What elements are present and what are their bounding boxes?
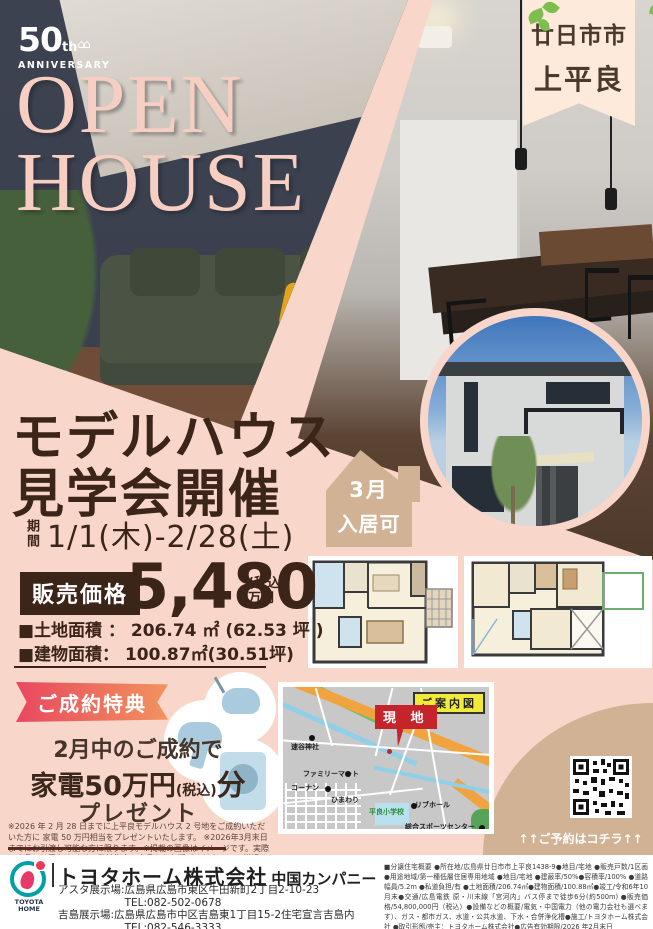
anniversary-suffix: th <box>62 40 77 55</box>
price-tax-note: (税込) <box>248 576 286 591</box>
logo-word-home: HOME <box>6 906 52 913</box>
showroom-tel-1: TEL:082-502-0678 <box>58 898 288 910</box>
floor-plan-2f <box>464 556 652 668</box>
logo-wordmark: TOYOTA HOME <box>6 899 52 914</box>
promo-line1: 2月中のご成約で <box>18 732 258 764</box>
price-amount: 5,480 <box>126 550 317 623</box>
badge-note: 入居可 <box>318 508 420 537</box>
access-map: ご案内図 現 地 速谷神社 ファミリーマート コーナン ひまわり 平良小学校 リ… <box>278 682 494 834</box>
period-label: 期間 <box>22 519 41 549</box>
landmark-dot <box>325 786 331 792</box>
open-house-title: OPEN HOUSE <box>16 66 306 222</box>
showroom-address-1: アスタ展示場:広島県広島市東区牛田新町2丁目2-10-23 <box>58 885 358 897</box>
open-house-line1: OPEN <box>16 66 306 144</box>
balcony-rail-shape <box>524 408 624 434</box>
toyota-home-logo-icon <box>10 861 46 897</box>
flyer-page: 50th⌂⌂ ANNIVERSARY OPEN HOUSE 廿日市市 上平良 <box>0 0 653 929</box>
vacuum-cleaner-icon <box>222 688 260 714</box>
reservation-qr-code <box>570 756 632 818</box>
stool-shape <box>628 275 653 339</box>
expressway-road-shape <box>278 682 385 726</box>
showroom-tel-2: TEL:082-546-3333 <box>58 923 288 929</box>
promo-underline <box>8 847 226 850</box>
showroom-addresses: アスタ展示場:広島県広島市東区牛田新町2丁目2-10-23 TEL:082-50… <box>58 885 358 929</box>
qr-caption: ↑↑ご予約はコチラ↑↑ <box>508 830 653 847</box>
cushion-shape <box>215 248 285 296</box>
landmark-label: 総合スポーツセンター <box>405 822 475 832</box>
showroom-address-2: 吉島展示場:広島県広島市中区吉島東1丁目15-2住宅宣言吉島内 <box>58 910 358 922</box>
landmark-label: リブホール <box>415 800 450 810</box>
footer: TOYOTA HOME トヨタホーム株式会社中国カンパニー アスタ展示場:広島県… <box>0 855 653 929</box>
window-shape <box>546 382 610 404</box>
land-area: ■土地面積 ： 206.74 ㎡ (62.53 坪 ) <box>18 616 324 641</box>
anniversary-logo: 50th⌂⌂ ANNIVERSARY <box>18 20 110 71</box>
exterior-house-photo <box>420 308 650 534</box>
house-skyline-icon: ⌂⌂ <box>77 37 88 51</box>
bonus-ribbon: ご成約特典 <box>16 682 168 722</box>
price-unit: (税込) 万円 <box>248 576 286 606</box>
landmark-label: 速谷神社 <box>291 742 319 752</box>
price-label: 販売価格 <box>20 572 140 615</box>
landmark-label: ひまわり <box>331 795 359 805</box>
landmark-label: コーナン <box>291 783 319 793</box>
building-area: ■建物面積： 100.87㎡(30.51坪) <box>18 640 294 665</box>
anniversary-number: 50 <box>18 20 62 59</box>
logo-dot-shape <box>36 861 45 870</box>
site-dot <box>387 749 392 754</box>
price-unit-label: 万円 <box>248 591 286 606</box>
bonus-ribbon-label: ご成約特典 <box>37 688 147 717</box>
floor-plan-2f-drawing <box>467 559 649 665</box>
landmark-dot <box>479 825 485 831</box>
section-divider <box>14 666 266 668</box>
open-house-line2: HOUSE <box>16 144 306 222</box>
footer-separator <box>52 863 54 887</box>
location-district: 上平良 <box>523 58 635 98</box>
window-shape <box>464 382 478 452</box>
cushion-shape <box>130 248 200 296</box>
landmark-dot <box>309 735 315 741</box>
qr-code-icon <box>573 759 629 815</box>
anniversary-word: ANNIVERSARY <box>18 60 110 71</box>
house-roof-shape <box>436 362 634 376</box>
badge-month: 3月 <box>318 474 420 504</box>
legal-overview: ■分譲住宅概要 ●所在地/広島県廿日市市上平良1438-9●地目/宅地 ●販売戸… <box>384 862 648 929</box>
floor-plan-1f-drawing <box>311 559 455 665</box>
move-in-badge-text: 3月 入居可 <box>318 474 420 537</box>
wall-lamp-shape <box>418 26 452 48</box>
floor-plan-1f <box>308 556 458 668</box>
landmark-label: ファミリーマート <box>303 769 359 779</box>
pendant-light-shape <box>520 0 522 150</box>
landmark-label: 平良小学校 <box>369 807 404 817</box>
site-marker: 現 地 <box>375 705 437 729</box>
tree-trunk-shape <box>511 486 515 534</box>
